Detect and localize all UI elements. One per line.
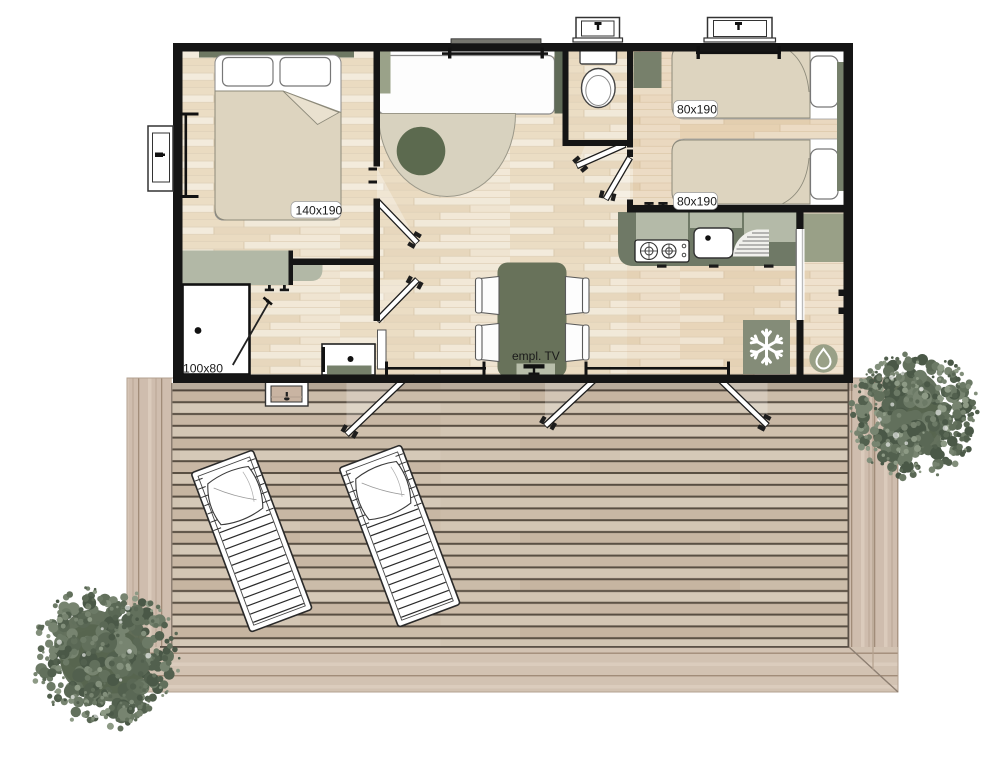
svg-text:100x80: 100x80 xyxy=(183,362,223,376)
svg-text:80x190: 80x190 xyxy=(677,103,717,117)
svg-text:80x190: 80x190 xyxy=(677,195,717,209)
svg-text:140x190: 140x190 xyxy=(296,204,343,218)
svg-text:empl. TV: empl. TV xyxy=(512,349,560,363)
